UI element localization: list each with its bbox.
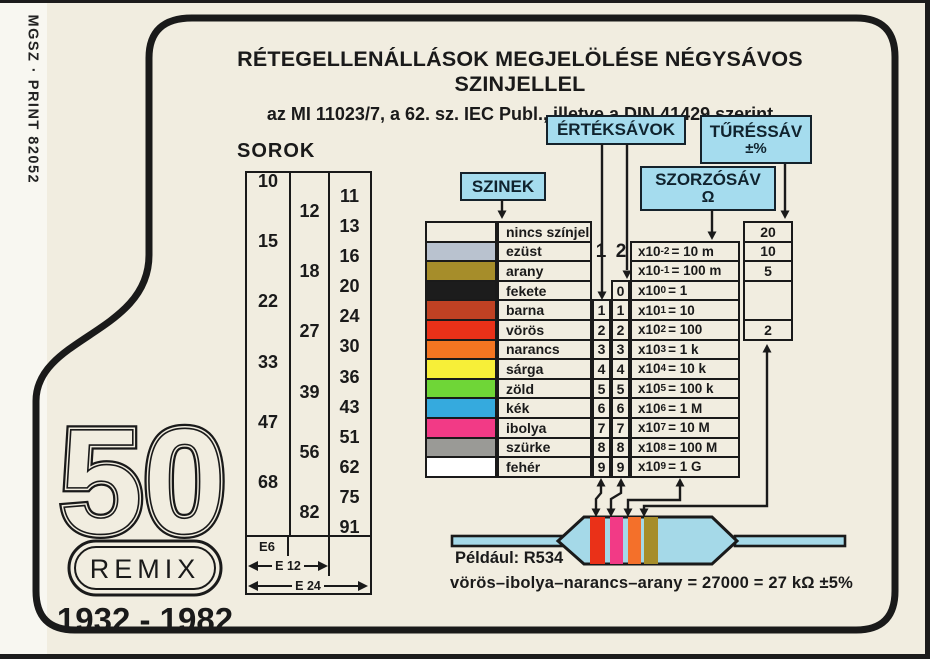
- digit2-8: 5: [611, 378, 630, 400]
- color-name-5: vörös: [497, 319, 592, 341]
- digit1-9: 6: [592, 397, 611, 419]
- digit1-8: 5: [592, 378, 611, 400]
- color-swatch-5: [425, 319, 497, 341]
- multiplier-10: x107 = 10 M: [630, 417, 740, 439]
- color-name-9: kék: [497, 397, 592, 419]
- color-swatch-0: [425, 221, 497, 243]
- multiplier-9: x106 = 1 M: [630, 397, 740, 419]
- example-formula: vörös–ibolya–narancs–arany = 27000 = 27 …: [450, 574, 853, 593]
- digit1-5: 2: [592, 319, 611, 341]
- multiplier-12: x109 = 1 G: [630, 456, 740, 478]
- szorzosav-unit: Ω: [702, 189, 715, 207]
- digit1-10: 7: [592, 417, 611, 439]
- color-name-3: fekete: [497, 280, 592, 302]
- digit1-6: 3: [592, 339, 611, 361]
- digit1-7: 4: [592, 358, 611, 380]
- color-name-7: sárga: [497, 358, 592, 380]
- poster: MGSZ · PRINT 82052 RÉTEGELLENÁLLÁSOK MEG…: [0, 0, 930, 659]
- digit2-7: 4: [611, 358, 630, 380]
- digit1-12: 9: [592, 456, 611, 478]
- szorzosav-callout: SZORZÓSÁV Ω: [640, 166, 776, 211]
- color-name-0: nincs színjel: [497, 221, 592, 243]
- multiplier-4: x101 = 10: [630, 299, 740, 321]
- color-swatch-7: [425, 358, 497, 380]
- color-swatch-8: [425, 378, 497, 400]
- color-name-11: szürke: [497, 437, 592, 459]
- color-swatch-6: [425, 339, 497, 361]
- digit2-10: 7: [611, 417, 630, 439]
- color-swatch-4: [425, 299, 497, 321]
- tolerance-5: 2: [743, 319, 793, 341]
- turessav-text: TŰRÉSSÁV: [710, 122, 803, 141]
- color-swatch-1: [425, 241, 497, 263]
- multiplier-7: x104 = 10 k: [630, 358, 740, 380]
- color-name-10: ibolya: [497, 417, 592, 439]
- digit2-11: 8: [611, 437, 630, 459]
- tolerance-blank: [743, 280, 793, 321]
- szorzosav-text: SZORZÓSÁV: [655, 170, 761, 189]
- turessav-callout: TŰRÉSSÁV ±%: [700, 115, 812, 164]
- multiplier-8: x105 = 100 k: [630, 378, 740, 400]
- color-name-6: narancs: [497, 339, 592, 361]
- szinek-callout: SZINEK: [460, 172, 546, 201]
- multiplier-3: x100 = 1: [630, 280, 740, 302]
- digit2-9: 6: [611, 397, 630, 419]
- color-name-1: ezüst: [497, 241, 592, 263]
- digit2-3: 0: [611, 280, 630, 302]
- band1-header: 1: [591, 241, 611, 263]
- example-label: Például: R534: [455, 549, 563, 568]
- multiplier-11: x108 = 100 M: [630, 437, 740, 459]
- multiplier-2: x10-1 = 100 m: [630, 260, 740, 282]
- color-name-8: zöld: [497, 378, 592, 400]
- digit2-5: 2: [611, 319, 630, 341]
- tolerance-2: 5: [743, 260, 793, 282]
- tolerance-1: 10: [743, 241, 793, 263]
- color-name-12: fehér: [497, 456, 592, 478]
- color-name-2: arany: [497, 260, 592, 282]
- digit2-6: 3: [611, 339, 630, 361]
- color-swatch-3: [425, 280, 497, 302]
- color-swatch-11: [425, 437, 497, 459]
- multiplier-5: x102 = 100: [630, 319, 740, 341]
- digit2-12: 9: [611, 456, 630, 478]
- color-name-4: barna: [497, 299, 592, 321]
- tolerance-0: 20: [743, 221, 793, 243]
- turessav-unit: ±%: [745, 141, 767, 158]
- erteksavok-callout: ÉRTÉKSÁVOK: [546, 115, 686, 145]
- color-swatch-9: [425, 397, 497, 419]
- color-swatch-2: [425, 260, 497, 282]
- digit2-4: 1: [611, 299, 630, 321]
- color-swatch-10: [425, 417, 497, 439]
- digit1-11: 8: [592, 437, 611, 459]
- digit1-4: 1: [592, 299, 611, 321]
- band2-header: 2: [611, 241, 631, 263]
- multiplier-1: x10-2 = 10 m: [630, 241, 740, 263]
- color-swatch-12: [425, 456, 497, 478]
- multiplier-6: x103 = 1 k: [630, 339, 740, 361]
